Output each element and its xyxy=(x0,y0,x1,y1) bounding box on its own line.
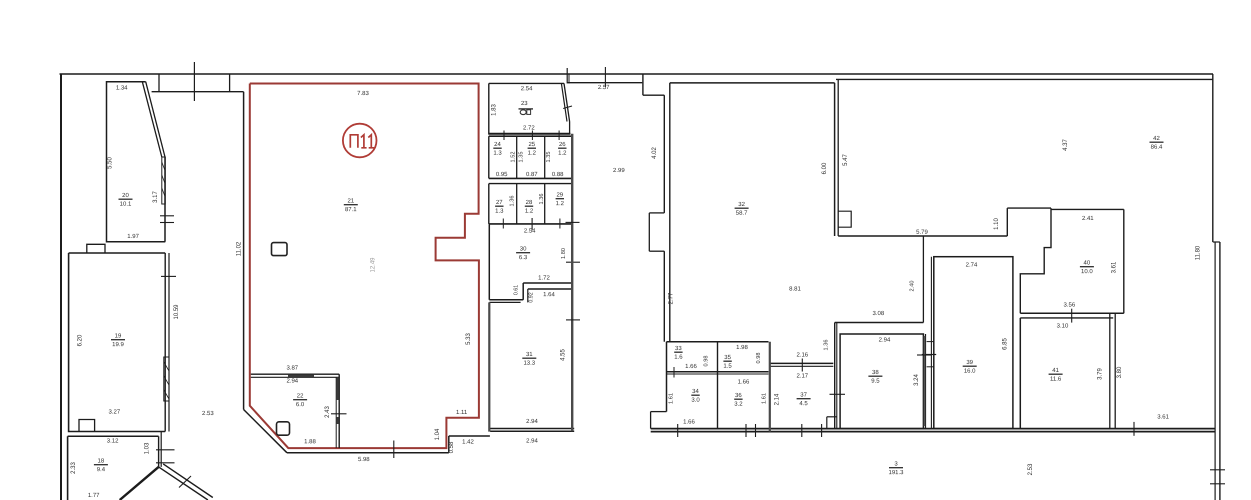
svg-text:2.43: 2.43 xyxy=(325,406,331,418)
svg-text:29: 29 xyxy=(556,192,563,198)
svg-text:3.80: 3.80 xyxy=(1117,366,1123,378)
svg-text:1.5: 1.5 xyxy=(723,364,732,370)
svg-text:2.33: 2.33 xyxy=(71,462,77,474)
svg-text:1.6: 1.6 xyxy=(674,355,683,361)
svg-text:8.81: 8.81 xyxy=(789,286,801,292)
svg-text:13.3: 13.3 xyxy=(523,361,535,367)
svg-text:9.4: 9.4 xyxy=(97,467,106,473)
svg-text:37: 37 xyxy=(800,392,807,398)
svg-text:0.98: 0.98 xyxy=(704,356,710,367)
svg-text:34: 34 xyxy=(692,389,699,395)
svg-text:0.95: 0.95 xyxy=(496,172,508,178)
svg-text:1.3: 1.3 xyxy=(495,209,504,215)
svg-text:1.36: 1.36 xyxy=(824,340,830,351)
svg-text:2.41: 2.41 xyxy=(1082,216,1094,222)
svg-text:1.35: 1.35 xyxy=(519,152,525,163)
svg-text:24: 24 xyxy=(494,142,501,148)
svg-text:11.80: 11.80 xyxy=(1196,245,1202,260)
svg-text:6.0: 6.0 xyxy=(296,402,305,408)
svg-text:86.4: 86.4 xyxy=(1151,145,1163,151)
svg-text:2.94: 2.94 xyxy=(526,438,538,444)
svg-text:1.35: 1.35 xyxy=(546,152,552,163)
svg-text:6.3: 6.3 xyxy=(519,255,528,261)
svg-text:1.3: 1.3 xyxy=(493,151,502,157)
svg-text:3.61: 3.61 xyxy=(1111,261,1117,273)
svg-text:1.72: 1.72 xyxy=(538,275,550,281)
svg-text:3.0: 3.0 xyxy=(691,398,700,404)
svg-text:23: 23 xyxy=(521,101,528,107)
svg-text:41: 41 xyxy=(1052,368,1059,374)
svg-text:42: 42 xyxy=(1153,136,1160,142)
svg-text:1.80: 1.80 xyxy=(561,248,567,259)
svg-text:28: 28 xyxy=(526,200,533,206)
svg-text:1.98: 1.98 xyxy=(736,345,748,351)
svg-text:2.94: 2.94 xyxy=(879,337,891,343)
svg-text:4.37: 4.37 xyxy=(1063,139,1069,151)
svg-text:22: 22 xyxy=(297,393,304,399)
svg-text:1.2: 1.2 xyxy=(528,151,537,157)
svg-text:0.58: 0.58 xyxy=(449,441,455,453)
svg-text:31: 31 xyxy=(526,352,533,358)
svg-text:2.40: 2.40 xyxy=(910,281,916,292)
svg-text:2.14: 2.14 xyxy=(775,393,781,405)
svg-text:3.27: 3.27 xyxy=(109,409,121,415)
svg-text:2.72: 2.72 xyxy=(523,125,535,131)
svg-text:1.36: 1.36 xyxy=(509,196,515,207)
svg-text:3.08: 3.08 xyxy=(873,311,885,317)
svg-text:1.97: 1.97 xyxy=(127,234,139,240)
svg-text:10.59: 10.59 xyxy=(174,304,180,320)
svg-text:3.2: 3.2 xyxy=(734,402,743,408)
svg-text:16.0: 16.0 xyxy=(964,369,976,375)
svg-text:1.88: 1.88 xyxy=(304,439,316,445)
svg-text:6.00: 6.00 xyxy=(822,162,828,174)
svg-text:1.2: 1.2 xyxy=(556,201,565,207)
svg-text:18: 18 xyxy=(98,458,105,464)
svg-text:2.77: 2.77 xyxy=(668,292,674,304)
svg-text:0.92: 0.92 xyxy=(529,292,535,302)
svg-text:9.5: 9.5 xyxy=(871,379,880,385)
svg-text:19: 19 xyxy=(115,333,122,339)
svg-text:2.74: 2.74 xyxy=(966,262,978,268)
svg-text:32: 32 xyxy=(738,202,745,208)
svg-text:10.0: 10.0 xyxy=(1081,269,1093,275)
svg-text:5.50: 5.50 xyxy=(107,157,113,169)
svg-text:5.98: 5.98 xyxy=(358,457,370,463)
svg-text:21: 21 xyxy=(347,198,354,204)
svg-text:1.66: 1.66 xyxy=(683,419,695,425)
svg-text:33: 33 xyxy=(675,346,682,352)
svg-text:30: 30 xyxy=(520,246,527,252)
svg-text:1.42: 1.42 xyxy=(462,439,474,445)
svg-text:2.16: 2.16 xyxy=(796,352,808,358)
svg-text:3.10: 3.10 xyxy=(1057,323,1069,329)
svg-text:2.53: 2.53 xyxy=(202,411,214,417)
svg-text:1.77: 1.77 xyxy=(88,493,100,499)
svg-text:1.03: 1.03 xyxy=(145,442,151,454)
svg-text:2.94: 2.94 xyxy=(286,378,298,384)
svg-text:1.34: 1.34 xyxy=(116,85,128,91)
svg-text:40: 40 xyxy=(1084,260,1091,266)
svg-text:1.61: 1.61 xyxy=(761,393,767,404)
svg-text:3.17: 3.17 xyxy=(153,191,159,203)
svg-text:1.11: 1.11 xyxy=(456,410,468,416)
svg-text:10.1: 10.1 xyxy=(120,202,132,208)
svg-text:1.04: 1.04 xyxy=(435,428,441,440)
svg-text:2.54: 2.54 xyxy=(521,86,533,92)
svg-text:1.64: 1.64 xyxy=(543,292,555,298)
svg-text:2.54: 2.54 xyxy=(524,228,536,234)
svg-text:11.6: 11.6 xyxy=(1050,377,1062,383)
svg-text:0.61: 0.61 xyxy=(514,285,520,295)
svg-text:4.55: 4.55 xyxy=(561,349,567,361)
svg-text:38: 38 xyxy=(872,370,879,376)
svg-text:27: 27 xyxy=(496,200,503,206)
svg-text:4.5: 4.5 xyxy=(799,401,808,407)
svg-text:26: 26 xyxy=(559,142,566,148)
svg-text:7.83: 7.83 xyxy=(357,91,369,97)
svg-text:4.02: 4.02 xyxy=(652,147,658,159)
svg-text:1.52: 1.52 xyxy=(510,152,516,163)
svg-text:2.17: 2.17 xyxy=(796,373,808,379)
svg-text:3.87: 3.87 xyxy=(286,365,298,371)
svg-text:2.99: 2.99 xyxy=(613,168,625,174)
svg-text:1.66: 1.66 xyxy=(738,379,750,385)
svg-text:3.61: 3.61 xyxy=(1157,414,1169,420)
svg-text:1.2: 1.2 xyxy=(558,151,567,157)
svg-text:6.20: 6.20 xyxy=(78,334,84,346)
svg-text:87.1: 87.1 xyxy=(345,207,357,213)
svg-text:20: 20 xyxy=(122,193,129,199)
svg-text:3.24: 3.24 xyxy=(914,374,920,386)
svg-text:2.57: 2.57 xyxy=(598,85,610,91)
svg-text:3.79: 3.79 xyxy=(1098,368,1104,380)
svg-text:36: 36 xyxy=(735,393,742,399)
svg-text:1.83: 1.83 xyxy=(491,104,497,116)
svg-text:1.61: 1.61 xyxy=(668,393,674,404)
svg-text:2.94: 2.94 xyxy=(526,419,538,425)
svg-text:191.3: 191.3 xyxy=(888,470,904,476)
svg-text:39: 39 xyxy=(966,360,973,366)
svg-text:0.98: 0.98 xyxy=(756,353,762,364)
svg-text:35: 35 xyxy=(724,355,731,361)
svg-text:0.88: 0.88 xyxy=(552,172,564,178)
svg-text:58.7: 58.7 xyxy=(736,211,748,217)
svg-text:11.02: 11.02 xyxy=(236,241,242,256)
svg-text:2.53: 2.53 xyxy=(1028,463,1034,475)
svg-text:5.33: 5.33 xyxy=(466,333,472,345)
svg-text:1.10: 1.10 xyxy=(994,218,1000,230)
svg-text:6.85: 6.85 xyxy=(1002,338,1008,350)
svg-text:3.56: 3.56 xyxy=(1064,302,1076,308)
svg-text:3.12: 3.12 xyxy=(107,438,119,444)
svg-text:12.49: 12.49 xyxy=(371,257,377,273)
svg-text:19.9: 19.9 xyxy=(112,342,124,348)
svg-text:5.79: 5.79 xyxy=(916,230,928,236)
svg-text:25: 25 xyxy=(528,142,535,148)
svg-text:1.36: 1.36 xyxy=(539,194,545,205)
svg-text:5.47: 5.47 xyxy=(843,154,849,166)
svg-text:1.66: 1.66 xyxy=(685,364,697,370)
svg-text:1.2: 1.2 xyxy=(525,209,534,215)
svg-text:0.87: 0.87 xyxy=(526,172,538,178)
